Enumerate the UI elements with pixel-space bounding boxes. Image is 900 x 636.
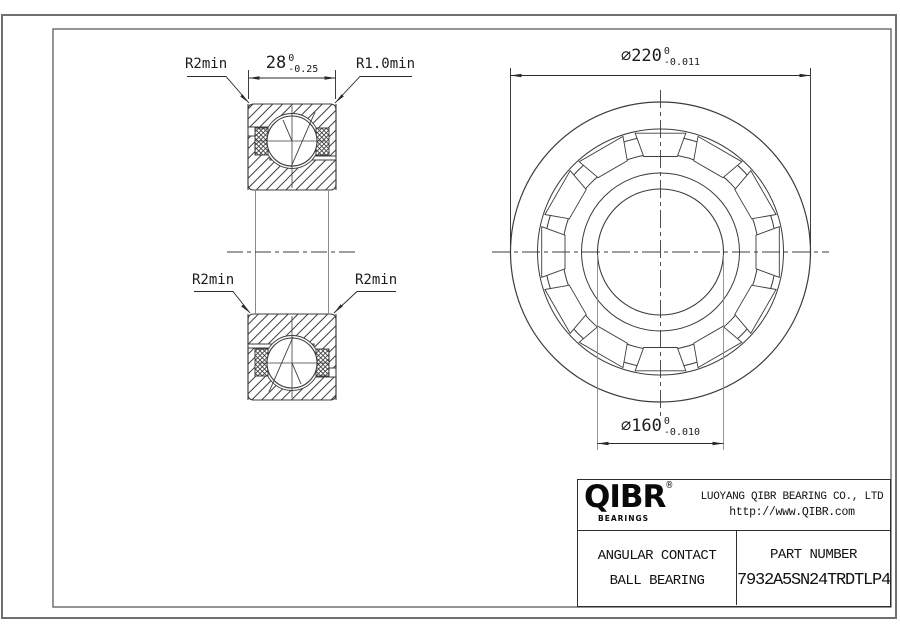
od-dimension-text: ⌀220 0 -0.011: [590, 46, 731, 67]
dim-arrow: [511, 74, 522, 77]
section-bottom-half: [248, 314, 336, 400]
radius-label-top-left: R2min: [185, 56, 227, 72]
cage-section-right: [316, 128, 329, 155]
engineering-drawing-page: R2min R1.0min R2min R2min 28 0 -0.25 ⌀22…: [0, 0, 900, 636]
radius-label-bottom-right: R2min: [355, 272, 397, 288]
dim-tolerance: 0 -0.25: [288, 54, 318, 75]
company-info: LUOYANG QIBR BEARING CO., LTD http://www…: [694, 480, 890, 530]
bore-dimension-text: ⌀160 0 -0.010: [590, 416, 731, 437]
radius-label-top-right: R1.0min: [356, 56, 415, 72]
company-name: LUOYANG QIBR BEARING CO., LTD: [701, 491, 884, 503]
title-block: QIBR ® BEARINGS LUOYANG QIBR BEARING CO.…: [577, 479, 891, 607]
dim-value: ⌀160: [621, 416, 662, 436]
radius-label-bottom-left: R2min: [192, 272, 234, 288]
registered-trademark-icon: ®: [666, 482, 672, 492]
company-website: http://www.QIBR.com: [729, 506, 854, 519]
width-dimension-text: 28 0 -0.25: [250, 53, 334, 74]
part-number-label: PART NUMBER: [770, 547, 857, 563]
leader-arrow: [241, 304, 250, 313]
part-number-cell: PART NUMBER 7932A5SN24TRDTLP4: [737, 531, 890, 605]
product-description-cell: ANGULAR CONTACT BALL BEARING: [578, 531, 737, 605]
dim-value: 28: [266, 53, 286, 73]
section-view: [187, 70, 412, 400]
brand-wordmark: QIBR: [584, 482, 665, 513]
section-top-half: [248, 104, 336, 190]
cage-section-left: [255, 128, 268, 155]
product-name-line1: ANGULAR CONTACT: [598, 548, 717, 564]
dim-arrow: [249, 76, 260, 79]
leader-arrow: [335, 94, 344, 103]
dim-arrow: [713, 442, 724, 445]
dim-arrow: [325, 76, 336, 79]
leader-arrow: [240, 94, 249, 103]
leader-arrow: [334, 304, 343, 313]
dim-arrow: [598, 442, 609, 445]
dim-tolerance: 0 -0.011: [664, 47, 700, 68]
brand-logo: QIBR ® BEARINGS: [578, 480, 694, 530]
dim-tolerance: 0 -0.010: [664, 417, 700, 438]
dim-value: ⌀220: [621, 46, 662, 66]
part-number-value: 7932A5SN24TRDTLP4: [737, 571, 890, 590]
product-name-line2: BALL BEARING: [610, 573, 705, 589]
title-block-bottom-row: ANGULAR CONTACT BALL BEARING PART NUMBER…: [578, 531, 890, 605]
brand-subtitle: BEARINGS: [598, 514, 694, 523]
front-view: [492, 68, 829, 450]
dim-arrow: [800, 74, 811, 77]
title-block-header-row: QIBR ® BEARINGS LUOYANG QIBR BEARING CO.…: [578, 480, 890, 531]
